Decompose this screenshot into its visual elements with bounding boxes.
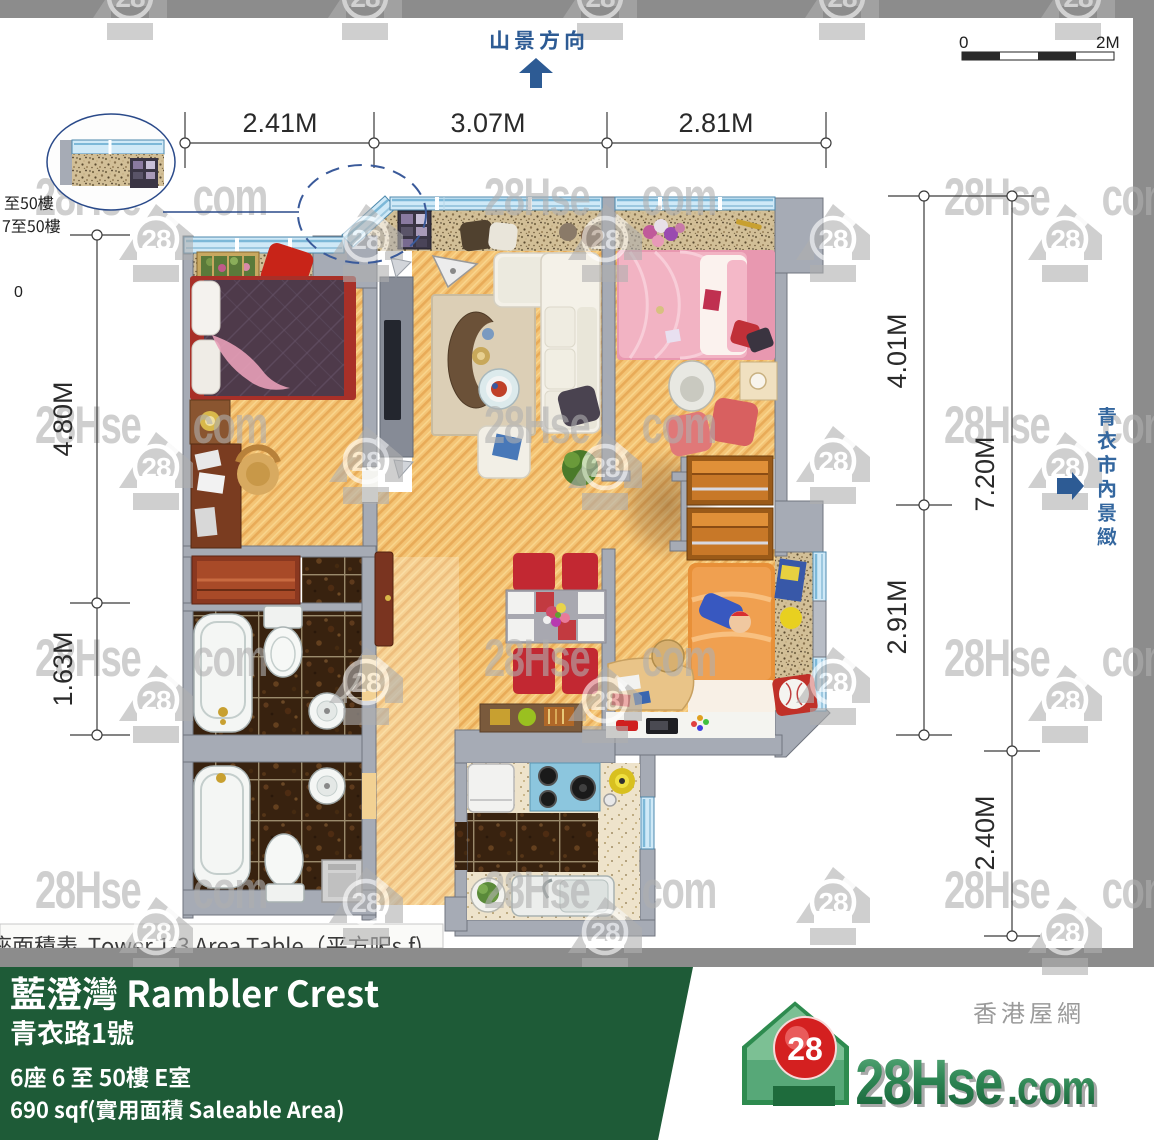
svg-text:0: 0 [14,284,23,301]
svg-text:2.91M: 2.91M [882,579,912,654]
svg-text:4.01M: 4.01M [882,313,912,388]
svg-text:2M: 2M [1096,33,1120,52]
svg-text:28: 28 [787,1031,823,1067]
svg-text:2.81M: 2.81M [678,108,753,138]
svg-text:1.63M: 1.63M [48,631,78,706]
svg-text:7.20M: 7.20M [970,436,1000,511]
svg-text:2.40M: 2.40M [970,795,1000,870]
svg-text:4.80M: 4.80M [48,381,78,456]
svg-text:2.41M: 2.41M [242,108,317,138]
svg-text:28Hse: 28Hse [855,1047,1002,1118]
svg-text:.com: .com [1007,1061,1096,1115]
svg-text:0: 0 [959,33,968,52]
svg-text:3.07M: 3.07M [450,108,525,138]
